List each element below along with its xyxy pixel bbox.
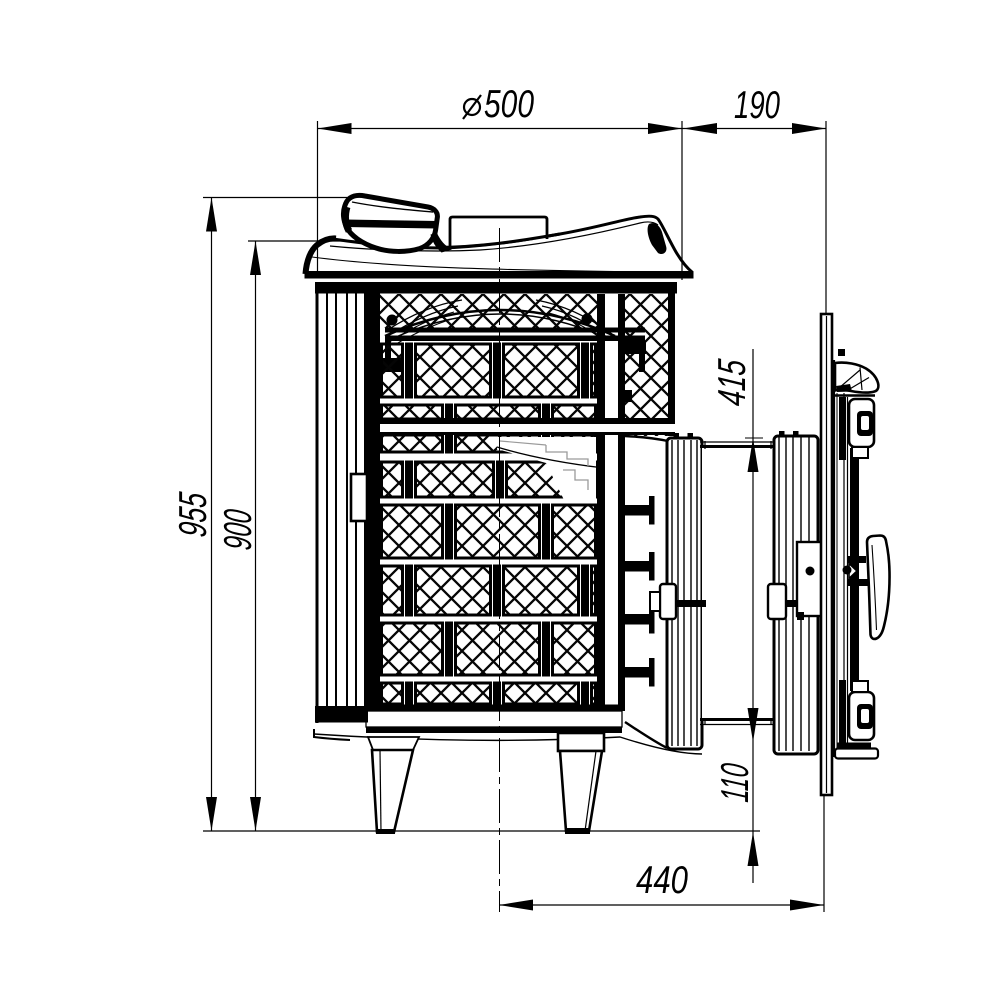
svg-text:415: 415 <box>711 357 754 408</box>
svg-text:500: 500 <box>484 83 534 126</box>
svg-text:110: 110 <box>714 761 757 804</box>
svg-text:440: 440 <box>636 859 688 902</box>
svg-text:900: 900 <box>217 507 260 552</box>
svg-text:955: 955 <box>172 490 215 539</box>
svg-text:190: 190 <box>734 84 780 127</box>
